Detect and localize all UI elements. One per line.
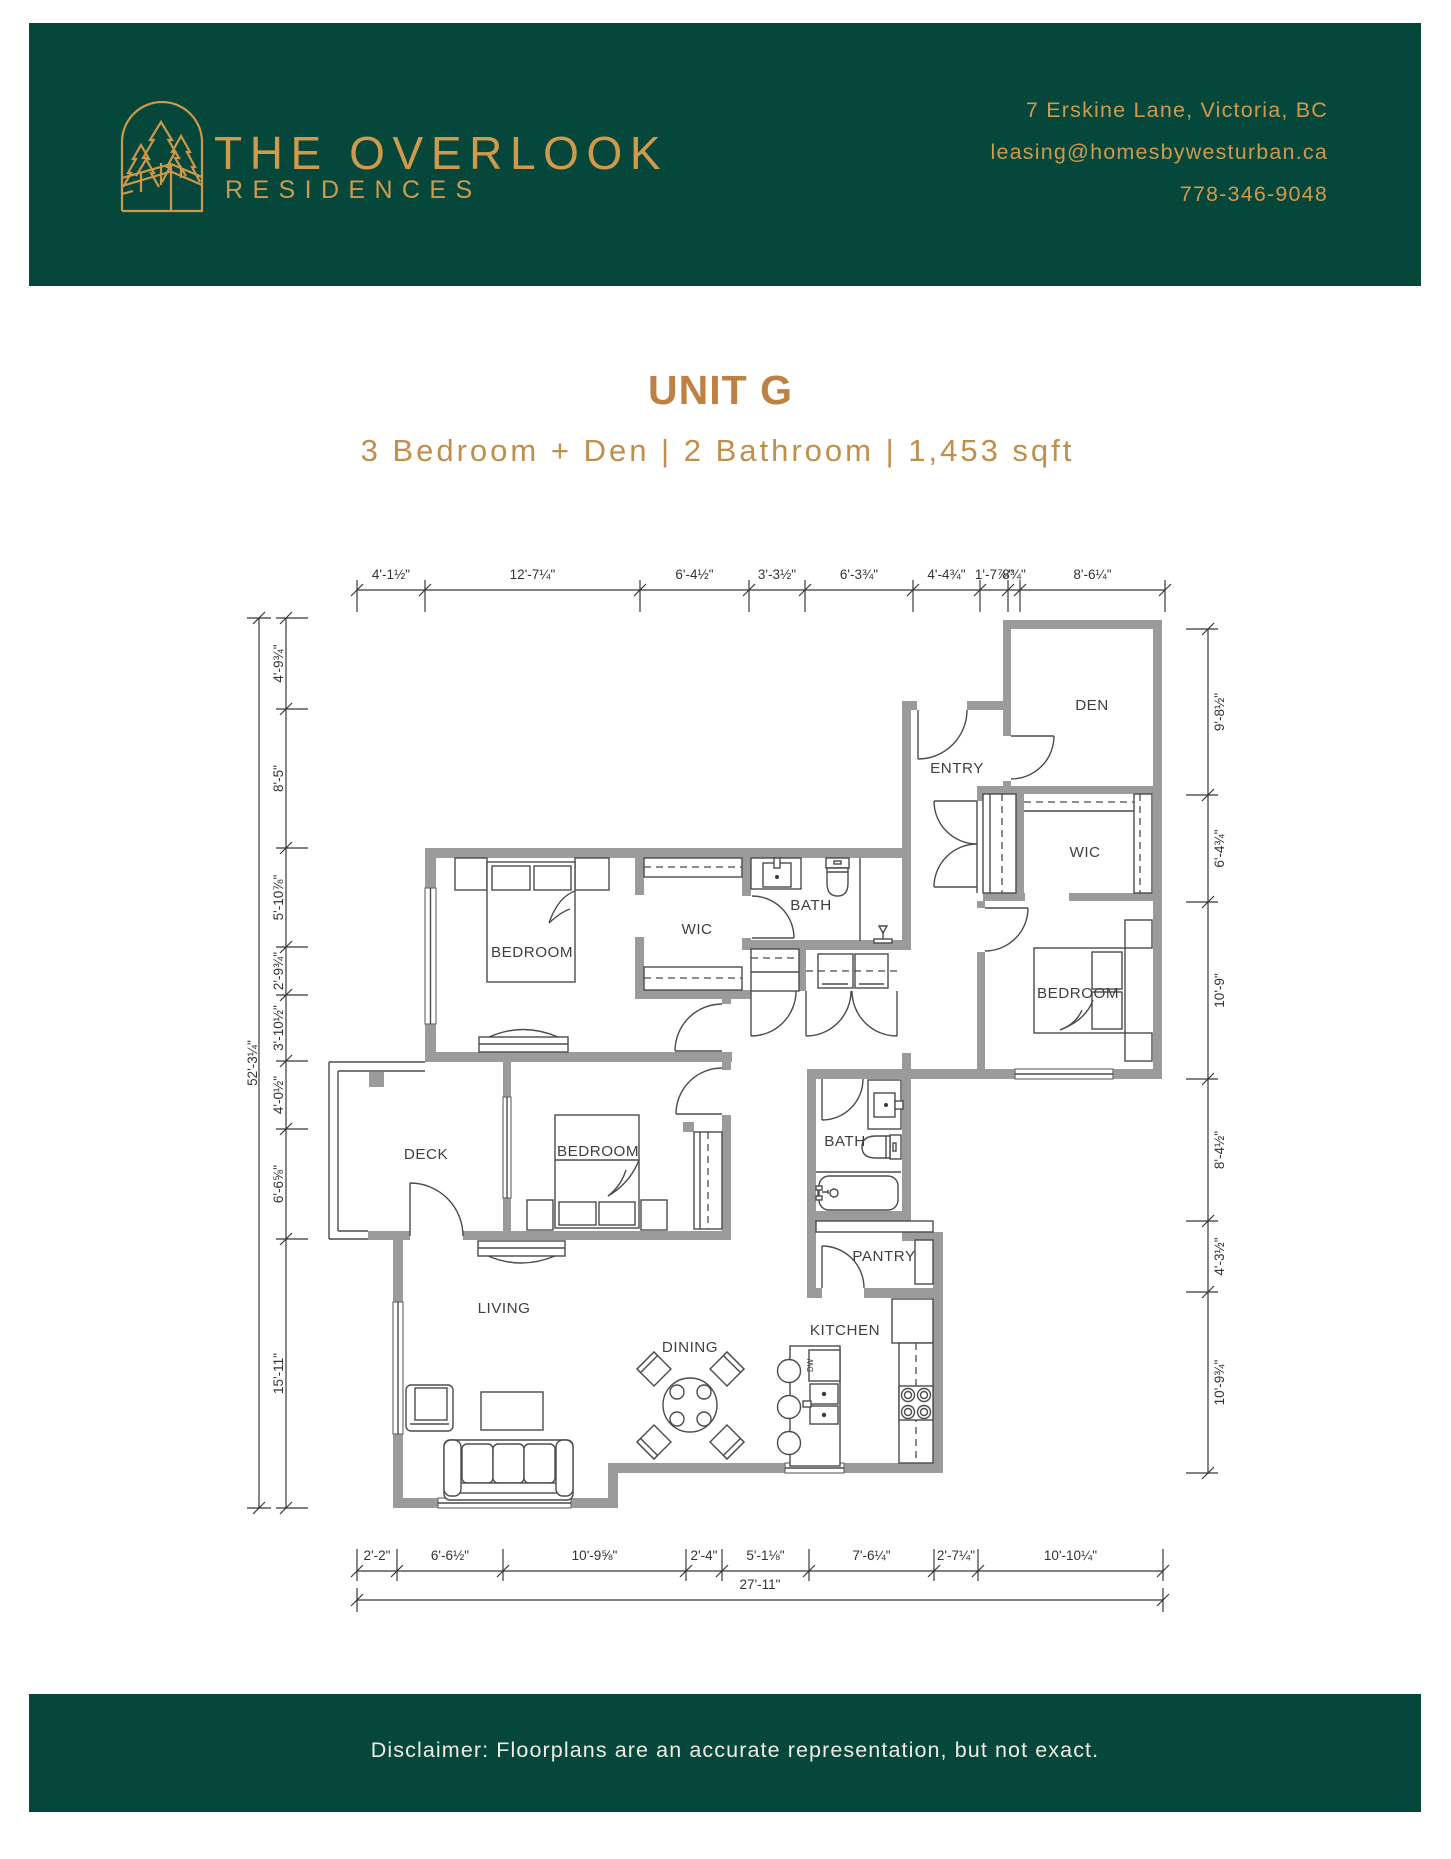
svg-text:5'-1⅛": 5'-1⅛" — [746, 1548, 784, 1563]
svg-text:4'-0½": 4'-0½" — [271, 1076, 286, 1114]
svg-text:6'-3¾": 6'-3¾" — [840, 567, 878, 582]
svg-text:DECK: DECK — [404, 1146, 448, 1163]
svg-text:PANTRY: PANTRY — [852, 1248, 915, 1265]
svg-text:LIVING: LIVING — [478, 1300, 531, 1317]
svg-text:6'-6⅝": 6'-6⅝" — [271, 1165, 286, 1203]
svg-text:BATH: BATH — [790, 897, 831, 914]
svg-text:2'-2": 2'-2" — [364, 1548, 391, 1563]
svg-text:BEDROOM: BEDROOM — [557, 1143, 639, 1160]
svg-text:KITCHEN: KITCHEN — [810, 1322, 880, 1339]
svg-text:2'-9¾": 2'-9¾" — [271, 952, 286, 990]
svg-text:15'-11": 15'-11" — [271, 1353, 286, 1394]
svg-text:WIC: WIC — [681, 921, 712, 938]
svg-text:8¾": 8¾" — [1002, 567, 1026, 582]
svg-text:ENTRY: ENTRY — [930, 760, 984, 777]
svg-text:DW: DW — [806, 1358, 815, 1372]
svg-text:7'-6¼": 7'-6¼" — [852, 1548, 890, 1563]
svg-text:BEDROOM: BEDROOM — [491, 944, 573, 961]
svg-text:10'-9": 10'-9" — [1212, 973, 1227, 1008]
svg-text:DINING: DINING — [662, 1339, 718, 1356]
svg-text:4'-1½": 4'-1½" — [372, 567, 410, 582]
svg-text:5'-10⅞": 5'-10⅞" — [271, 874, 286, 920]
svg-text:WIC: WIC — [1069, 844, 1100, 861]
svg-text:8'-5": 8'-5" — [271, 765, 286, 792]
svg-text:2'-7¼": 2'-7¼" — [937, 1548, 975, 1563]
svg-text:27'-11": 27'-11" — [740, 1577, 781, 1592]
svg-text:4'-3½": 4'-3½" — [1212, 1237, 1227, 1275]
svg-text:4'-9¾": 4'-9¾" — [271, 644, 286, 682]
svg-text:DEN: DEN — [1075, 697, 1109, 714]
svg-text:BEDROOM: BEDROOM — [1037, 985, 1119, 1002]
svg-text:10'-9¾": 10'-9¾" — [1212, 1359, 1227, 1405]
svg-text:9'-8½": 9'-8½" — [1212, 693, 1227, 731]
svg-text:3'-10½": 3'-10½" — [271, 1005, 286, 1051]
svg-text:2'-4": 2'-4" — [691, 1548, 718, 1563]
svg-text:6'-4¾": 6'-4¾" — [1212, 829, 1227, 867]
svg-text:52'-3¼": 52'-3¼" — [245, 1040, 260, 1086]
svg-text:12'-7¼": 12'-7¼" — [510, 567, 556, 582]
svg-text:6'-4½": 6'-4½" — [675, 567, 713, 582]
svg-text:3'-3½": 3'-3½" — [758, 567, 796, 582]
svg-text:6'-6½": 6'-6½" — [431, 1548, 469, 1563]
svg-text:BATH: BATH — [824, 1133, 865, 1150]
svg-text:4'-4¾": 4'-4¾" — [927, 567, 965, 582]
svg-text:10'-9⅝": 10'-9⅝" — [572, 1548, 618, 1563]
svg-text:8'-6¼": 8'-6¼" — [1073, 567, 1111, 582]
svg-text:8'-4½": 8'-4½" — [1212, 1131, 1227, 1169]
svg-text:10'-10¼": 10'-10¼" — [1044, 1548, 1097, 1563]
